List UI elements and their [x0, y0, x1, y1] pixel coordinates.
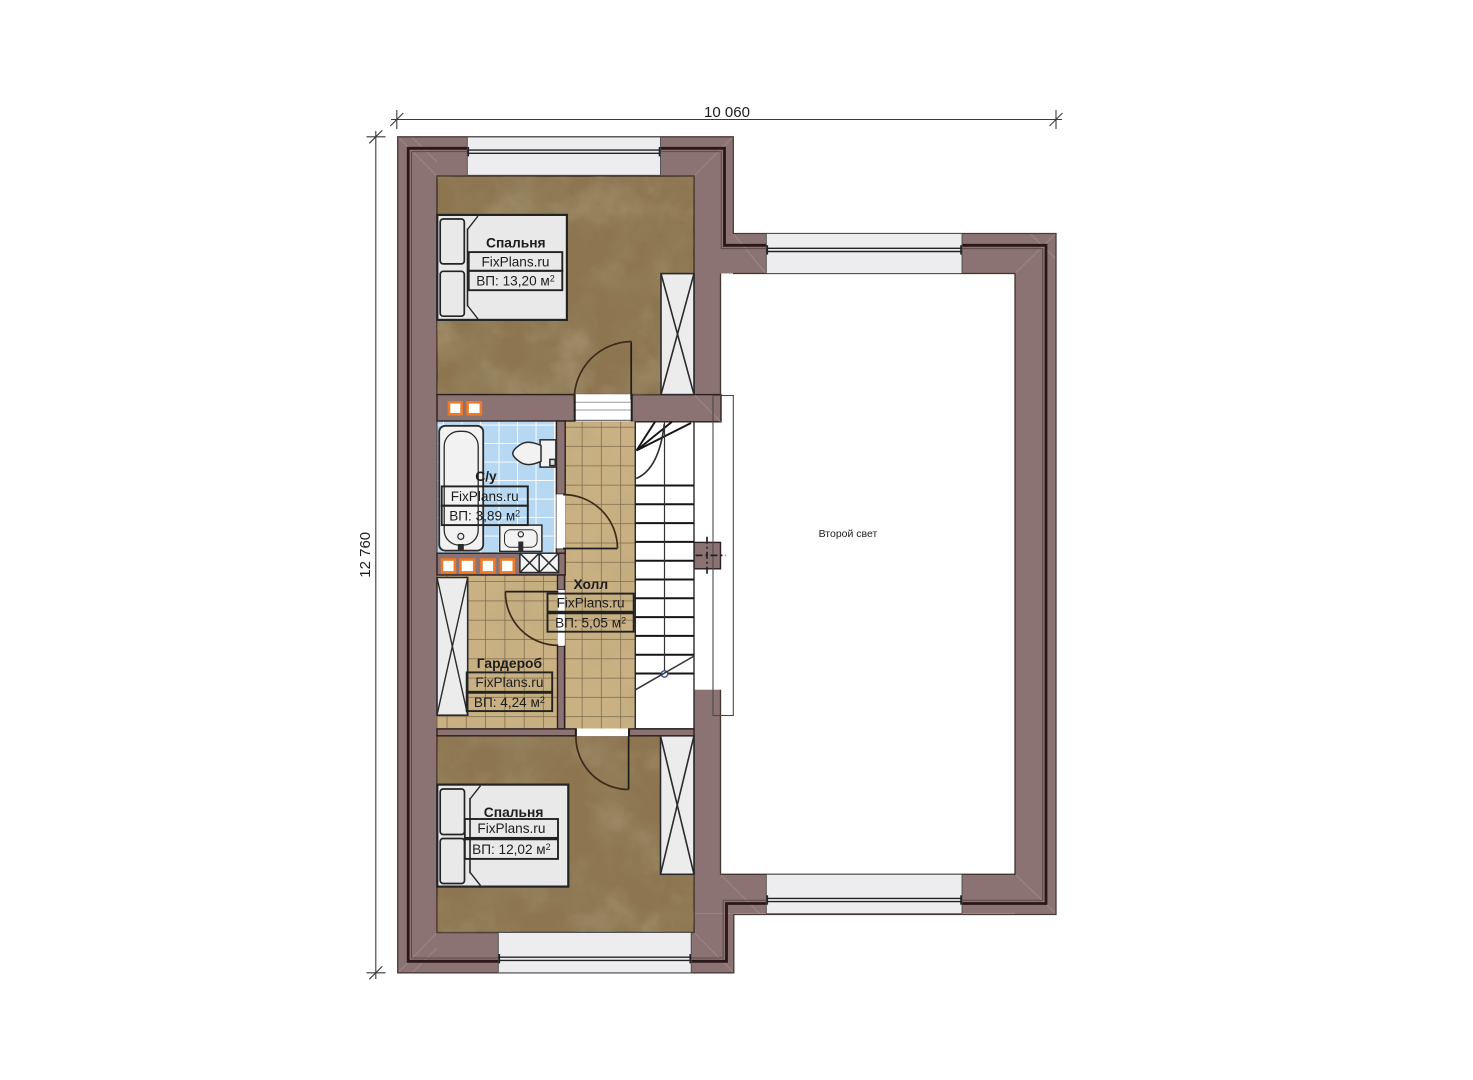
svg-text:FixPlans.ru: FixPlans.ru	[477, 821, 545, 836]
svg-text:FixPlans.ru: FixPlans.ru	[451, 489, 519, 504]
svg-text:FixPlans.ru: FixPlans.ru	[475, 675, 543, 690]
svg-text:ВП: 13,20 м2: ВП: 13,20 м2	[476, 273, 555, 288]
svg-text:ВП: 12,02 м2: ВП: 12,02 м2	[472, 842, 551, 857]
svg-text:Спальня: Спальня	[484, 805, 544, 820]
svg-text:FixPlans.ru: FixPlans.ru	[482, 254, 550, 269]
svg-text:С/у: С/у	[475, 469, 497, 484]
svg-text:Второй свет: Второй свет	[819, 528, 878, 540]
svg-text:Гардероб: Гардероб	[477, 656, 542, 671]
svg-text:FixPlans.ru: FixPlans.ru	[557, 596, 625, 611]
svg-text:ВП: 4,24 м2: ВП: 4,24 м2	[474, 695, 545, 710]
svg-text:10 060: 10 060	[704, 104, 750, 121]
svg-text:12 760: 12 760	[357, 532, 374, 578]
svg-text:Спальня: Спальня	[486, 235, 546, 250]
svg-text:Холл: Холл	[573, 577, 608, 592]
svg-text:ВП: 3,89 м2: ВП: 3,89 м2	[449, 508, 520, 523]
svg-text:ВП: 5,05 м2: ВП: 5,05 м2	[555, 616, 626, 631]
